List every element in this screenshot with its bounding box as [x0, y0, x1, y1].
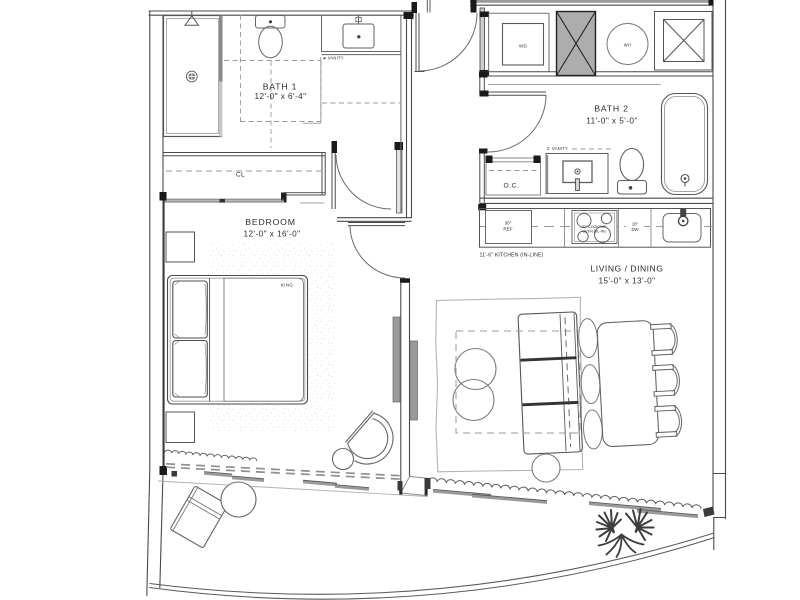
svg-text:BATH 2: BATH 2 — [594, 104, 629, 114]
svg-text:BEDROOM: BEDROOM — [245, 217, 296, 227]
svg-text:11'-0" x 5'-0": 11'-0" x 5'-0" — [586, 117, 638, 126]
svg-text:12'-0" x 16'-0": 12'-0" x 16'-0" — [243, 230, 300, 239]
svg-text:2' VANITY: 2' VANITY — [547, 146, 568, 151]
svg-text:WD: WD — [519, 44, 527, 49]
svg-text:CL: CL — [236, 172, 245, 179]
svg-text:WH: WH — [624, 43, 632, 48]
svg-text:BATH 1: BATH 1 — [263, 82, 298, 92]
svg-text:DW: DW — [632, 227, 639, 232]
svg-text:30" COOKTOP: 30" COOKTOP — [582, 225, 607, 229]
svg-text:15'-0" x 13'-0": 15'-0" x 13'-0" — [598, 277, 655, 286]
svg-text:LIVING / DINING: LIVING / DINING — [591, 264, 664, 274]
svg-text:O.C.: O.C. — [504, 183, 520, 190]
svg-text:12'-0" x 6'-4": 12'-0" x 6'-4" — [254, 92, 306, 101]
svg-text:11'-6" KITCHEN (IN-LINE): 11'-6" KITCHEN (IN-LINE) — [480, 253, 544, 259]
svg-text:KING: KING — [281, 283, 294, 288]
svg-text:OVEN (BL-IN): OVEN (BL-IN) — [582, 230, 605, 234]
svg-text:◄ VANITY: ◄ VANITY — [322, 56, 344, 61]
svg-text:REF: REF — [503, 227, 512, 232]
svg-text:18": 18" — [632, 222, 639, 227]
svg-text:30": 30" — [505, 221, 512, 226]
